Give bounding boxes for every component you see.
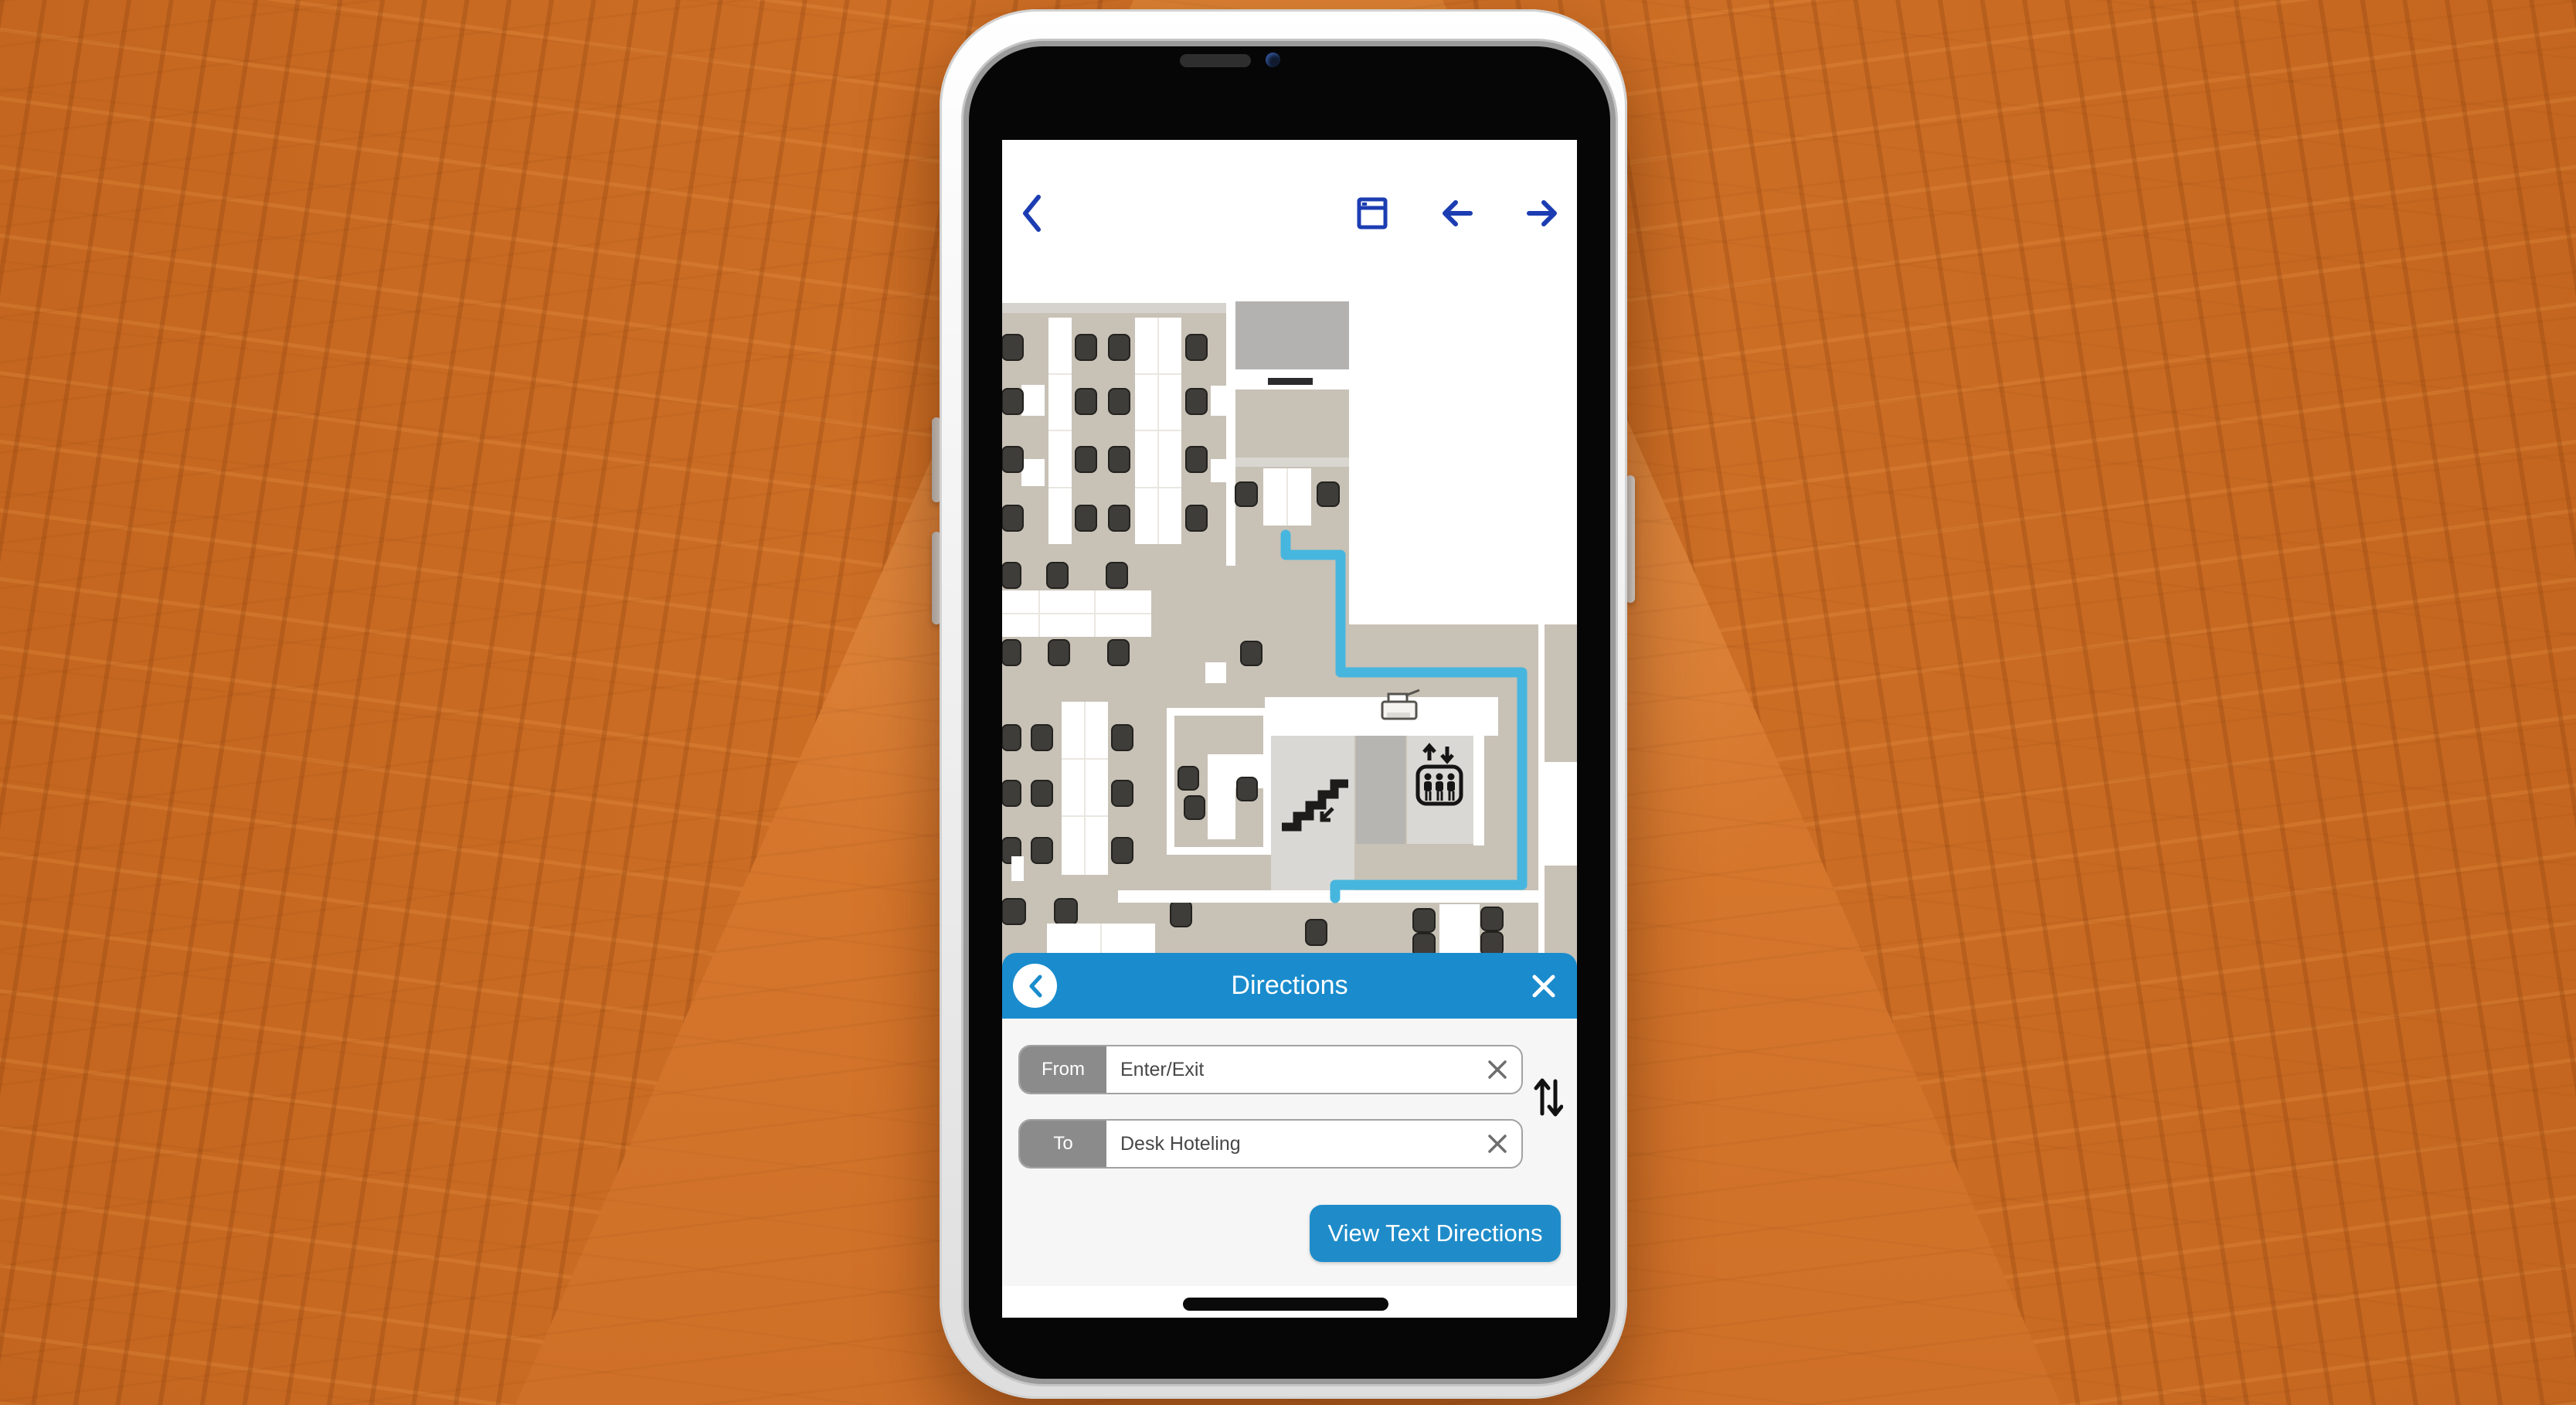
from-clear-button[interactable] (1473, 1046, 1521, 1093)
swap-vertical-icon (1534, 1075, 1563, 1120)
clear-icon (1487, 1060, 1507, 1080)
directions-close-button[interactable] (1531, 973, 1557, 999)
room-right-edge (1541, 762, 1577, 866)
phone-screen: Directions From Enter/Exit (1002, 140, 1577, 1318)
map-canvas[interactable] (1002, 232, 1577, 989)
view-text-directions-button[interactable]: View Text Directions (1310, 1205, 1561, 1262)
conference-room (1235, 301, 1349, 369)
earpiece-speaker (1180, 54, 1251, 67)
screenshot-stage: Directions From Enter/Exit (0, 0, 2576, 1405)
from-value: Enter/Exit (1106, 1046, 1473, 1093)
directions-title: Directions (1002, 953, 1577, 1019)
close-icon (1531, 973, 1557, 999)
chevron-left-icon (1021, 191, 1044, 236)
directions-back-button[interactable] (1013, 964, 1057, 1008)
clear-icon (1487, 1134, 1507, 1154)
shaft-column (1356, 736, 1405, 844)
to-clear-button[interactable] (1473, 1121, 1521, 1167)
to-value: Desk Hoteling (1106, 1121, 1473, 1167)
to-field[interactable]: To Desk Hoteling (1018, 1119, 1523, 1169)
arrow-right-icon (1524, 199, 1560, 228)
arrow-left-icon (1439, 199, 1475, 228)
chevron-left-icon (1027, 974, 1044, 998)
tv-screen (1268, 378, 1313, 385)
window-icon (1356, 195, 1388, 232)
front-camera (1266, 53, 1280, 67)
open-area-right (1349, 279, 1577, 624)
from-label: From (1020, 1046, 1106, 1093)
from-field[interactable]: From Enter/Exit (1018, 1045, 1523, 1094)
wall-band-top (1002, 303, 1226, 313)
directions-header: Directions (1002, 953, 1577, 1019)
home-indicator[interactable] (1183, 1298, 1388, 1311)
swap-from-to-button[interactable] (1534, 1075, 1563, 1120)
to-label: To (1020, 1121, 1106, 1167)
